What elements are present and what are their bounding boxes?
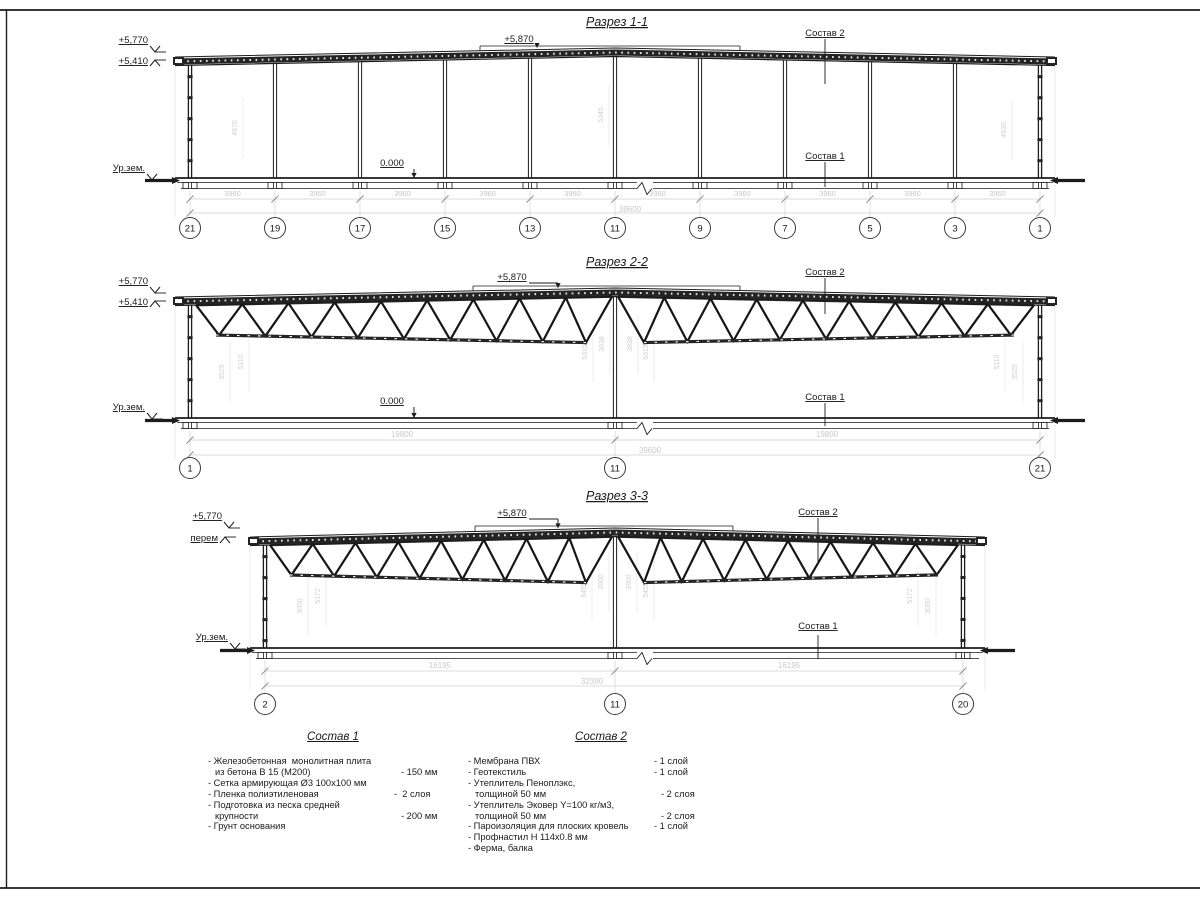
- column-base: [872, 183, 878, 189]
- column-batten: [960, 597, 965, 600]
- column-batten: [187, 315, 192, 318]
- trusses: [196, 297, 1034, 343]
- drawing-sheet: 4970534549303960396039603960396039603960…: [0, 0, 1200, 900]
- legend-line: толщиной 50 мм- 2 слоя: [468, 789, 734, 800]
- grid-bubble-label: 5: [867, 223, 872, 234]
- grid-bubbles: 21191715131197531: [180, 218, 1051, 239]
- column-base: [617, 653, 623, 659]
- column-base: [277, 183, 283, 189]
- interior-dimension-label: 5315: [582, 344, 589, 360]
- column-base: [608, 423, 614, 429]
- grid-bubble-label: 13: [525, 223, 536, 234]
- elevation-label: +5,410: [119, 56, 148, 67]
- layer-callout: Состав 2: [805, 28, 844, 39]
- zero-elevation-label: 0.000: [380, 158, 404, 169]
- drawing-labels: Разрез 1-1 +5,770 +5,410 Ур.зем. 0.000 +…: [113, 15, 845, 686]
- interior-dimension-label: 5315: [643, 344, 650, 360]
- column-base: [353, 183, 359, 189]
- interior-dimension-label: 5172: [315, 588, 322, 604]
- half-dimension-label: 19800: [816, 430, 839, 439]
- column-batten: [187, 75, 192, 78]
- grid-bubble-label: 7: [782, 223, 787, 234]
- legend-line-qty: - 2 слоя: [394, 789, 430, 800]
- legend-line-text: - Железобетонная монолитная плита: [208, 756, 394, 767]
- interior-dimension-label: 3900: [598, 574, 605, 590]
- column-batten: [1037, 159, 1042, 162]
- column-batten: [187, 159, 192, 162]
- columns: [187, 297, 1042, 419]
- roof-end-cap: [977, 538, 986, 544]
- legend-line-text: - Утеплитель Эковер Y=100 кг/м3,: [468, 800, 654, 811]
- legend-line-text: - Сетка армирующая Ø3 100x100 мм: [208, 778, 394, 789]
- composition-2-title: Состав 2: [468, 731, 734, 743]
- grid-bubble-label: 21: [1035, 463, 1046, 474]
- legend-line-text: толщиной 50 мм: [468, 811, 661, 822]
- legend-line: - Грунт основания: [208, 821, 458, 832]
- legend-line: толщиной 50 мм- 2 слоя: [468, 811, 734, 822]
- trusses: [270, 537, 958, 583]
- roof: [249, 526, 986, 546]
- ground-level-label: Ур.зем.: [113, 402, 145, 413]
- extent-lines: [250, 539, 985, 690]
- column-batten: [1037, 336, 1042, 339]
- layer-callout: Состав 1: [805, 151, 844, 162]
- elevation-mark-icon: [150, 46, 160, 52]
- grid-bubbles: 21120: [255, 694, 974, 715]
- truss-bottom-chord: [216, 335, 586, 342]
- layer-callout: Состав 2: [798, 507, 837, 518]
- column-batten: [187, 378, 192, 381]
- elevation-mark-icon: [150, 287, 160, 293]
- roof: [174, 46, 1056, 66]
- composition-1-list: - Железобетонная монолитная плитаиз бето…: [208, 756, 458, 832]
- legend-line-qty: - 200 мм: [401, 811, 438, 822]
- interior-dimension-label: 3529: [1012, 364, 1019, 380]
- roof-end-cap: [1047, 298, 1056, 304]
- interior-dimension-label: 3050: [925, 598, 932, 614]
- interior-dimension-label: 5110: [238, 354, 245, 369]
- legend-line-text: - Мембрана ПВХ: [468, 756, 654, 767]
- column-base: [702, 183, 708, 189]
- grid-bubble-label: 19: [270, 223, 281, 234]
- legend-line-text: - Грунт основания: [208, 821, 394, 832]
- column-base: [1033, 423, 1039, 429]
- elevation-label: +5,770: [119, 276, 148, 287]
- interior-dimension-label: 3838: [599, 336, 606, 352]
- interior-dimension-label: 3529: [219, 364, 226, 380]
- interior-dimension-label: 4970: [232, 120, 239, 136]
- interior-dimensions: 497053454930: [232, 85, 1012, 160]
- grid-bubble-label: 9: [697, 223, 702, 234]
- legend-line-qty: - 2 слоя: [661, 789, 695, 800]
- column-batten: [960, 555, 965, 558]
- legend-line-text: - Геотекстиль: [468, 767, 654, 778]
- column-batten: [262, 597, 267, 600]
- column-batten: [262, 639, 267, 642]
- dimensions: 3960396039603960396039603960396039603960: [187, 189, 1044, 218]
- composition-1-block: Состав 1 - Железобетонная монолитная пли…: [208, 731, 458, 832]
- column-batten: [960, 639, 965, 642]
- interior-dimension-label: 5110: [994, 354, 1001, 369]
- interior-dimension-label: 5345: [598, 107, 605, 123]
- interior-dimension-label: 4930: [1001, 122, 1008, 138]
- bay-dimension-label: 3960: [649, 189, 666, 198]
- grid-bubble-label: 1: [187, 463, 192, 474]
- leader-arrowhead-icon: [534, 43, 539, 48]
- column-base: [268, 183, 274, 189]
- grid-bubble-label: 11: [610, 699, 620, 710]
- legend-line: - Геотекстиль- 1 слой: [468, 767, 734, 778]
- layer-callout: Состав 1: [805, 392, 844, 403]
- grid-bubble-label: 21: [185, 223, 196, 234]
- bay-dimension-label: 3960: [734, 189, 751, 198]
- column-base: [258, 653, 264, 659]
- column-batten: [187, 117, 192, 120]
- ridge-elevation-label: +5,870: [497, 272, 526, 283]
- column-batten: [1037, 138, 1042, 141]
- elevation-mark-icon: [230, 643, 240, 649]
- ridge-elevation-label: +5,870: [504, 34, 533, 45]
- elevation-mark-icon: [150, 301, 160, 307]
- legend-line-text: - Ферма, балка: [468, 843, 654, 854]
- elevation-mark-icon: [147, 413, 157, 419]
- column-batten: [1037, 75, 1042, 78]
- grid-bubble-label: 11: [610, 463, 620, 474]
- roof-end-cap: [1047, 58, 1056, 64]
- column-batten: [1037, 96, 1042, 99]
- column-batten: [960, 618, 965, 621]
- interior-dimensions: 35295110531538383838531551103529: [219, 314, 1023, 402]
- section-title: Разрез 1-1: [586, 15, 648, 29]
- roof-end-cap: [174, 298, 183, 304]
- column-base: [438, 183, 444, 189]
- grid-bubble-label: 15: [440, 223, 451, 234]
- column-base: [183, 423, 189, 429]
- legend-line: - Железобетонная монолитная плита: [208, 756, 458, 767]
- bay-dimension-label: 3960: [479, 189, 496, 198]
- legend-line: крупности- 200 мм: [208, 811, 458, 822]
- half-dimension-label: 16195: [778, 661, 801, 670]
- bay-dimension-label: 3960: [904, 189, 921, 198]
- column-batten: [187, 138, 192, 141]
- legend-line-text: толщиной 50 мм: [468, 789, 661, 800]
- column-base: [267, 653, 273, 659]
- column-batten: [262, 555, 267, 558]
- column-base: [1042, 423, 1048, 429]
- column-base: [608, 653, 614, 659]
- interior-dimension-label: 5172: [907, 588, 914, 604]
- column-batten: [187, 96, 192, 99]
- column-base: [183, 183, 189, 189]
- elevation-mark-icon: [150, 60, 160, 66]
- columns: [187, 57, 1042, 179]
- total-dimension-label: 39600: [619, 205, 642, 214]
- legend-line-text: - Утеплитель Пеноплэкс,: [468, 778, 654, 789]
- elevation-mark-icon: [220, 537, 230, 543]
- legend-line-qty: - 1 слой: [654, 767, 688, 778]
- interior-dimension-label: 5455: [581, 582, 588, 598]
- interior-dimension-label: 3838: [627, 336, 634, 352]
- grid-bubble-label: 1: [1037, 223, 1042, 234]
- elevation-label: +5,770: [119, 35, 148, 46]
- column-base: [447, 183, 453, 189]
- elevation-label: +5,410: [119, 297, 148, 308]
- elevation-mark-icon: [224, 522, 234, 528]
- column-base: [617, 183, 623, 189]
- break-mark-bg: [637, 652, 653, 666]
- grid-bubble-label: 3: [952, 223, 957, 234]
- column-base: [1042, 183, 1048, 189]
- legend-line-text: - Подготовка из песка средней: [208, 800, 394, 811]
- column-batten: [1037, 117, 1042, 120]
- grid-bubble-label: 2: [262, 699, 267, 710]
- column-base: [192, 183, 198, 189]
- total-dimension-label: 32390: [581, 677, 604, 686]
- columns: [262, 537, 965, 649]
- composition-1-title: Состав 1: [208, 731, 458, 743]
- column-base: [957, 183, 963, 189]
- column-base: [956, 653, 962, 659]
- column-base: [787, 183, 793, 189]
- break-mark-bg: [637, 422, 653, 436]
- roof-end-cap: [174, 58, 183, 64]
- legend-line-qty: - 2 слоя: [661, 811, 695, 822]
- interior-dimension-label: 3900: [626, 574, 633, 590]
- legend-line: - Мембрана ПВХ- 1 слой: [468, 756, 734, 767]
- column-base: [362, 183, 368, 189]
- total-dimension-label: 39600: [639, 446, 662, 455]
- bay-dimension-label: 3960: [394, 189, 411, 198]
- legend-line: - Ферма, балка: [468, 843, 734, 854]
- composition-2-list: - Мембрана ПВХ- 1 слой- Геотекстиль- 1 с…: [468, 756, 734, 854]
- layer-callout: Состав 1: [798, 621, 837, 632]
- grid-bubbles: 11121: [180, 458, 1051, 479]
- column-batten: [187, 399, 192, 402]
- column-base: [608, 183, 614, 189]
- column-base: [693, 183, 699, 189]
- column-batten: [262, 618, 267, 621]
- half-dimension-label: 19800: [391, 430, 414, 439]
- legend-line: - Подготовка из песка средней: [208, 800, 458, 811]
- section-title: Разрез 2-2: [586, 255, 648, 269]
- elevation-label: +5,770: [193, 511, 222, 522]
- section-title: Разрез 3-3: [586, 489, 648, 503]
- bay-dimension-label: 3960: [989, 189, 1006, 198]
- interior-dimension-label: 3050: [297, 598, 304, 614]
- layer-callout: Состав 2: [805, 267, 844, 278]
- floor: [220, 647, 1015, 666]
- legend-line-text: - Профнастил Н 114x0.8 мм: [468, 832, 654, 843]
- column-base: [965, 653, 971, 659]
- legend-line: из бетона В 15 (М200)- 150 мм: [208, 767, 458, 778]
- composition-2-block: Состав 2 - Мембрана ПВХ- 1 слой- Геотекс…: [468, 731, 734, 854]
- column-base: [948, 183, 954, 189]
- column-base: [523, 183, 529, 189]
- column-batten: [262, 576, 267, 579]
- ground-level-label: Ур.зем.: [196, 632, 228, 643]
- legend-line: - Профнастил Н 114x0.8 мм: [468, 832, 734, 843]
- zero-elevation-label: 0.000: [380, 396, 404, 407]
- column-batten: [1037, 399, 1042, 402]
- grid-bubble-label: 11: [610, 223, 620, 234]
- column-batten: [960, 576, 965, 579]
- column-base: [1033, 183, 1039, 189]
- bay-dimension-label: 3960: [564, 189, 581, 198]
- legend-line: - Пленка полиэтиленовая- 2 слоя: [208, 789, 458, 800]
- variable-elevation-label: перем: [190, 533, 218, 544]
- dimensions: [187, 431, 1044, 459]
- bay-dimension-label: 3960: [309, 189, 326, 198]
- dimensions: [262, 661, 967, 694]
- legend-line: - Пароизоляция для плоских кровель- 1 сл…: [468, 821, 734, 832]
- materials-legend: Состав 1 - Железобетонная монолитная пли…: [0, 731, 1200, 866]
- grid-bubble-label: 17: [355, 223, 366, 234]
- legend-line-qty: - 1 слой: [654, 756, 688, 767]
- column-base: [863, 183, 869, 189]
- grid-bubble-label: 20: [958, 699, 969, 710]
- bay-dimension-label: 3960: [224, 189, 241, 198]
- roof-end-cap: [249, 538, 258, 544]
- column-base: [192, 423, 198, 429]
- legend-line-text: крупности: [208, 811, 401, 822]
- legend-line: - Сетка армирующая Ø3 100x100 мм: [208, 778, 458, 789]
- legend-line-text: - Пароизоляция для плоских кровель: [468, 821, 654, 832]
- legend-line: - Утеплитель Эковер Y=100 кг/м3,: [468, 800, 734, 811]
- roof: [174, 286, 1056, 306]
- legend-line-text: - Пленка полиэтиленовая: [208, 789, 394, 800]
- ridge-elevation-label: +5,870: [497, 508, 526, 519]
- legend-line-qty: - 150 мм: [401, 767, 438, 778]
- column-batten: [1037, 357, 1042, 360]
- ground-level-label: Ур.зем.: [113, 163, 145, 174]
- legend-line: - Утеплитель Пеноплэкс,: [468, 778, 734, 789]
- column-base: [617, 423, 623, 429]
- truss-bottom-chord: [644, 335, 1014, 342]
- column-base: [532, 183, 538, 189]
- column-batten: [187, 357, 192, 360]
- bay-dimension-label: 3960: [819, 189, 836, 198]
- column-batten: [187, 336, 192, 339]
- column-base: [778, 183, 784, 189]
- legend-line-text: из бетона В 15 (М200): [208, 767, 401, 778]
- legend-line-qty: - 1 слой: [654, 821, 688, 832]
- column-batten: [1037, 378, 1042, 381]
- column-batten: [1037, 315, 1042, 318]
- half-dimension-label: 16195: [429, 661, 452, 670]
